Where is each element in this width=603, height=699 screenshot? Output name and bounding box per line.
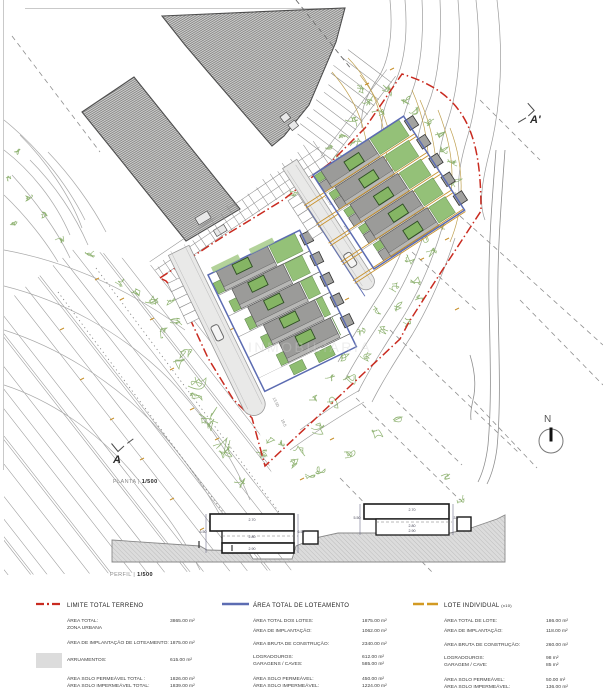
svg-text:N: N bbox=[544, 414, 551, 425]
svg-text:118.00 m²: 118.00 m² bbox=[546, 628, 568, 634]
svg-text:612.00 m²: 612.00 m² bbox=[362, 654, 384, 660]
svg-text:50.00 m²: 50.00 m² bbox=[546, 677, 566, 683]
svg-text:1875.00 m²: 1875.00 m² bbox=[170, 640, 195, 646]
svg-text:ÁREA TOTAL:: ÁREA TOTAL: bbox=[67, 617, 98, 624]
svg-text:1839.00 m²: 1839.00 m² bbox=[170, 683, 195, 689]
svg-text:A': A' bbox=[529, 114, 541, 126]
svg-text:5.50: 5.50 bbox=[354, 516, 361, 520]
svg-text:PERFIL | 1/500: PERFIL | 1/500 bbox=[110, 572, 153, 578]
svg-text:ZONA URBANA: ZONA URBANA bbox=[67, 625, 103, 631]
svg-text:ÁREA DE IMPLANTAÇÃO DE LOTEAME: ÁREA DE IMPLANTAÇÃO DE LOTEAMENTO: bbox=[67, 639, 169, 646]
svg-text:PLANTA | 1/500: PLANTA | 1/500 bbox=[113, 479, 158, 485]
svg-text:2.90: 2.90 bbox=[249, 547, 256, 551]
svg-text:ÁREA DE IMPLANTAÇÃO:: ÁREA DE IMPLANTAÇÃO: bbox=[444, 627, 503, 634]
svg-text:85 m²: 85 m² bbox=[546, 662, 559, 668]
svg-text:6.50: 6.50 bbox=[200, 530, 207, 534]
svg-text:3.1: 3.1 bbox=[454, 516, 459, 520]
svg-text:1224.00 m²: 1224.00 m² bbox=[362, 683, 387, 689]
svg-text:GARAGEM / CAVE:: GARAGEM / CAVE: bbox=[444, 662, 487, 668]
svg-text:ÁREA BRUTA DE CONSTRUÇÃO:: ÁREA BRUTA DE CONSTRUÇÃO: bbox=[253, 640, 329, 647]
svg-text:GARAGENS / CAVES:: GARAGENS / CAVES: bbox=[253, 661, 302, 667]
svg-text:ÁREA SOLO PERMEÁVEL:: ÁREA SOLO PERMEÁVEL: bbox=[253, 675, 314, 682]
svg-text:2.80: 2.80 bbox=[249, 535, 256, 539]
svg-text:1062.00 m²: 1062.00 m² bbox=[362, 628, 387, 634]
svg-text:136.00 m²: 136.00 m² bbox=[546, 684, 568, 690]
svg-text:ÁREA BRUTA DE CONSTRUÇÃO:: ÁREA BRUTA DE CONSTRUÇÃO: bbox=[444, 641, 520, 648]
svg-text:615.00 m²: 615.00 m² bbox=[170, 657, 192, 663]
svg-text:ÁREA TOTAL DE LOTEAMENTO: ÁREA TOTAL DE LOTEAMENTO bbox=[253, 602, 349, 609]
svg-text:A: A bbox=[112, 454, 121, 466]
svg-text:ÁREA DE IMPLANTAÇÃO:: ÁREA DE IMPLANTAÇÃO: bbox=[253, 627, 312, 634]
svg-text:INMOBILIARIA: INMOBILIARIA bbox=[248, 339, 372, 355]
svg-text:ÁREA TOTAL DOS LOTES:: ÁREA TOTAL DOS LOTES: bbox=[253, 617, 313, 624]
svg-text:6.50: 6.50 bbox=[298, 530, 305, 534]
svg-text:LOGRADOUROS:: LOGRADOUROS: bbox=[253, 654, 293, 660]
svg-text:260.00 m²: 260.00 m² bbox=[546, 642, 568, 648]
svg-text:1826.00 m²: 1826.00 m² bbox=[170, 676, 195, 682]
svg-text:2.90: 2.90 bbox=[409, 529, 416, 533]
svg-text:2.70: 2.70 bbox=[409, 508, 416, 512]
svg-text:ÁREA TOTAL DE LOTE:: ÁREA TOTAL DE LOTE: bbox=[444, 617, 497, 624]
svg-text:ÁREA SOLO PERMEÁVEL TOTAL :: ÁREA SOLO PERMEÁVEL TOTAL : bbox=[67, 675, 145, 682]
svg-text:ÁREA SOLO PERMEÁVEL:: ÁREA SOLO PERMEÁVEL: bbox=[444, 676, 505, 683]
svg-text:186.00 m²: 186.00 m² bbox=[546, 618, 568, 624]
svg-text:LOGRADOUROS:: LOGRADOUROS: bbox=[444, 655, 484, 661]
svg-text:2.70: 2.70 bbox=[249, 518, 256, 522]
svg-text:ARRUAMENTOS:: ARRUAMENTOS: bbox=[67, 657, 106, 663]
svg-text:LIMITE TOTAL TERRENO: LIMITE TOTAL TERRENO bbox=[67, 603, 143, 609]
svg-text:ÁREA SOLO IMPERMEÁVEL:: ÁREA SOLO IMPERMEÁVEL: bbox=[444, 683, 510, 690]
svg-text:98 m²: 98 m² bbox=[546, 655, 559, 661]
svg-text:ÁREA SOLO IMPERMEÁVEL TOTAL:: ÁREA SOLO IMPERMEÁVEL TOTAL: bbox=[67, 682, 149, 689]
svg-text:ÁREA SOLO IMPERMEÁVEL:: ÁREA SOLO IMPERMEÁVEL: bbox=[253, 682, 319, 689]
svg-text:3865.00 m²: 3865.00 m² bbox=[170, 618, 195, 624]
svg-text:1875.00 m²: 1875.00 m² bbox=[362, 618, 387, 624]
svg-text:2.80: 2.80 bbox=[409, 524, 416, 528]
svg-text:450.00 m²: 450.00 m² bbox=[362, 676, 384, 682]
svg-text:585.00 m²: 585.00 m² bbox=[362, 661, 384, 667]
svg-text:2340.00 m²: 2340.00 m² bbox=[362, 641, 387, 647]
